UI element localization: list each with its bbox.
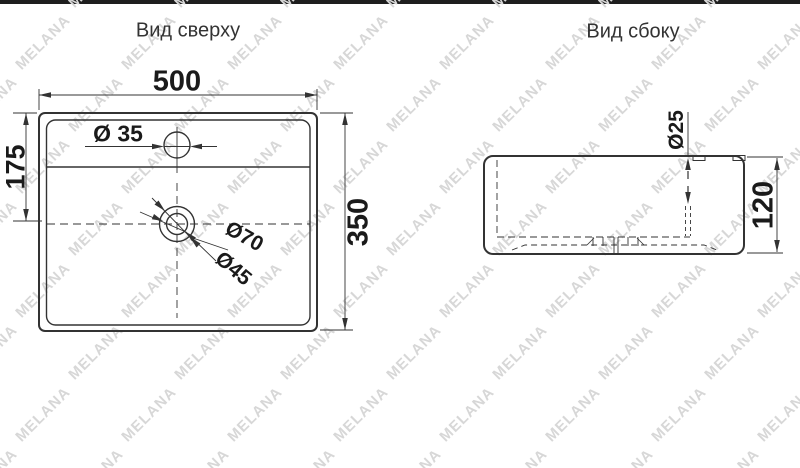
side-view-title: Вид сбоку <box>586 21 679 44</box>
dim-faucet-hole-label: Ø 35 <box>93 121 143 148</box>
dim-side-drain-hole-label: Ø25 <box>665 110 689 150</box>
drain-fitting-ticks <box>587 238 644 245</box>
drain-inner-leader <box>140 212 216 261</box>
top-view-arrowheads <box>23 92 348 330</box>
side-view-drawing <box>484 112 783 254</box>
dim-overall-depth-label: 350 <box>343 198 376 246</box>
drawing-linework <box>0 0 800 468</box>
hidden-lower-contour <box>512 245 717 250</box>
top-view-outer-outline <box>39 113 317 331</box>
dim-drain-offset-label: 175 <box>1 144 32 189</box>
top-view-title: Вид сверху <box>136 20 240 43</box>
drain-hole-hidden-lines <box>686 206 691 236</box>
dim-overall-width-label: 500 <box>153 66 201 99</box>
top-view-inner-rim <box>47 120 311 325</box>
dim-overall-height-label: 120 <box>748 181 781 229</box>
sink-technical-drawing: MELANAMELANAMELANAMELANAMELANAMELANAMELA… <box>0 0 800 468</box>
drain-fitting-lines <box>593 237 638 254</box>
top-view-drawing <box>13 89 353 331</box>
